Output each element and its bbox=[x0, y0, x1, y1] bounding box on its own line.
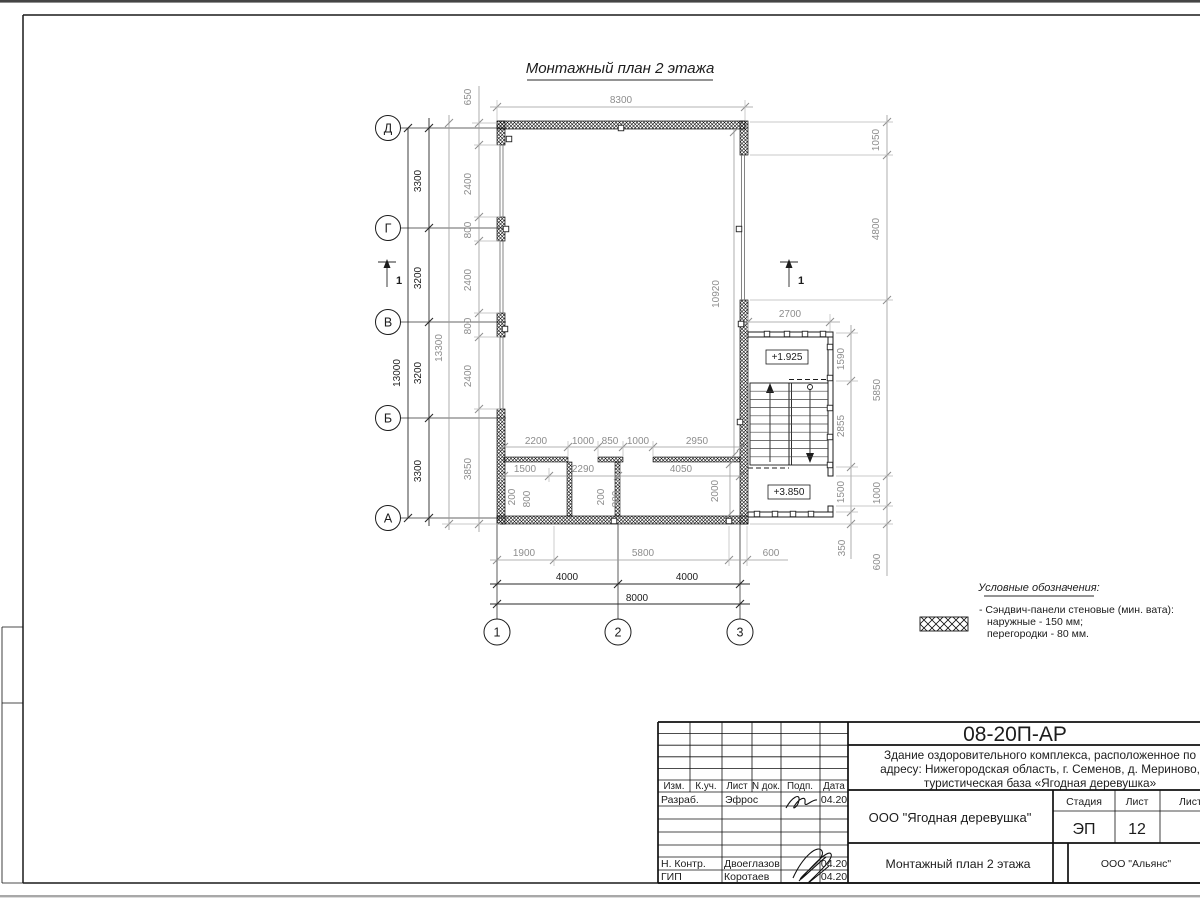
dimension-label: 13000 bbox=[392, 359, 403, 387]
project-description-line: туристическая база «Ягодная деревушка» bbox=[924, 776, 1157, 790]
dimension-label: 850 bbox=[602, 436, 619, 447]
dimension-label: 2400 bbox=[463, 172, 474, 195]
dimension-label: 800 bbox=[463, 317, 474, 334]
panel-joint-icon bbox=[618, 125, 624, 131]
panel-joint-icon bbox=[738, 321, 744, 327]
dimension-label: 350 bbox=[837, 539, 848, 556]
panel-joint-icon bbox=[827, 344, 833, 350]
legend-title: Условные обозначения: bbox=[977, 582, 1099, 594]
drawing-name: Монтажный план 2 этажа bbox=[885, 857, 1030, 871]
sandwich-panel-hatch-icon bbox=[920, 617, 968, 631]
dimension-label: 1000 bbox=[872, 481, 883, 504]
role-label: Разраб. bbox=[661, 794, 699, 806]
sheet-bottom-edge bbox=[0, 895, 1200, 897]
dimension-label: 600 bbox=[872, 553, 883, 570]
panel-joint-icon bbox=[827, 462, 833, 468]
dimension-label: 2000 bbox=[710, 479, 721, 502]
window-glazing bbox=[500, 145, 745, 409]
section-mark-right: 1 bbox=[780, 259, 804, 287]
legend-item: перегородки - 80 мм. bbox=[987, 628, 1089, 640]
elevation-mark-upper: +1.925 bbox=[766, 350, 808, 364]
panel-joint-icon bbox=[820, 331, 826, 337]
panel-joint-icon bbox=[827, 434, 833, 440]
axis-label: 1 bbox=[494, 626, 501, 640]
axis-label: 2 bbox=[615, 626, 622, 640]
panel-joint-icon bbox=[726, 518, 732, 524]
drawing-canvas: Монтажный план 2 этажа bbox=[0, 0, 1200, 900]
dimension-label: 1900 bbox=[513, 548, 536, 559]
dimension-labels-layer: 1300033003200320033001330065024008002400… bbox=[376, 88, 884, 645]
panel-joint-icon bbox=[503, 226, 509, 232]
dimension-label: 650 bbox=[463, 88, 474, 105]
sheet-number: 12 bbox=[1128, 821, 1146, 838]
document-code: 08-20П-АР bbox=[963, 723, 1067, 746]
stage-label: Стадия bbox=[1066, 796, 1102, 808]
column-header: Дата bbox=[823, 781, 845, 792]
panel-joint-icon bbox=[764, 331, 770, 337]
dimension-label: 2200 bbox=[525, 436, 548, 447]
dimension-label: 1590 bbox=[836, 347, 847, 370]
dimension-label: 800 bbox=[463, 221, 474, 238]
dimension-label: 2290 bbox=[572, 464, 595, 475]
dimension-label: 1000 bbox=[627, 436, 650, 447]
dimension-label: 3200 bbox=[413, 266, 424, 289]
role-label: ГИП bbox=[661, 871, 682, 883]
legend-item: - Сэндвич-панели стеновые (мин. вата): bbox=[979, 604, 1174, 616]
dimension-lines-layer bbox=[404, 86, 893, 608]
panel-joint-icon bbox=[502, 326, 508, 332]
dimension-label: 1050 bbox=[871, 128, 882, 151]
role-label: Н. Контр. bbox=[661, 858, 706, 870]
axis-lines bbox=[400, 128, 740, 619]
dimension-label: 5850 bbox=[872, 378, 883, 401]
dimension-label: 2855 bbox=[836, 414, 847, 437]
plan-title-text: Монтажный план 2 этажа bbox=[526, 60, 715, 77]
dimension-label: 2400 bbox=[463, 268, 474, 291]
stair-start-marker bbox=[808, 385, 813, 390]
dimension-label: 8000 bbox=[626, 593, 649, 604]
elevation-mark-lower: +3.850 bbox=[768, 485, 810, 499]
dimension-label: 2700 bbox=[779, 309, 802, 320]
panel-joint-icon bbox=[754, 511, 760, 517]
frame-left-strip bbox=[2, 627, 23, 883]
column-header: Лист bbox=[726, 781, 748, 792]
dimension-label: 2950 bbox=[686, 436, 709, 447]
section-number: 1 bbox=[798, 275, 804, 287]
column-header: К.уч. bbox=[695, 781, 716, 792]
dimension-label: 5800 bbox=[632, 548, 655, 559]
section-arrow-icon bbox=[786, 259, 793, 268]
dimension-label: 3200 bbox=[413, 361, 424, 384]
dimension-label: 800 bbox=[611, 490, 622, 507]
panel-joint-icon bbox=[784, 331, 790, 337]
axis-label: Г bbox=[385, 222, 392, 236]
dimension-label: 200 bbox=[596, 488, 607, 505]
elevation-value: +3.850 bbox=[774, 487, 805, 498]
legend-item: наружные - 150 мм; bbox=[987, 616, 1083, 628]
panel-joint-icon bbox=[506, 136, 512, 142]
dimension-label: 8300 bbox=[610, 95, 633, 106]
stair-annex: +1.925 +3.850 bbox=[748, 332, 833, 517]
axis-label: 3 bbox=[737, 626, 744, 640]
dimension-label: 4000 bbox=[556, 572, 579, 583]
column-header: Изм. bbox=[664, 781, 685, 792]
date-value: 04.20 bbox=[821, 871, 847, 883]
panel-joint-icon bbox=[790, 511, 796, 517]
title-block: 08-20П-АР Здание оздоровительного компле… bbox=[658, 722, 1200, 883]
dimension-label: 10920 bbox=[711, 280, 722, 308]
axis-label: А bbox=[384, 512, 393, 526]
dimension-label: 4800 bbox=[871, 217, 882, 240]
section-arrow-icon bbox=[384, 259, 391, 268]
dimension-tick bbox=[404, 124, 744, 608]
dimension-label: 3300 bbox=[413, 169, 424, 192]
dimension-label: 200 bbox=[507, 488, 518, 505]
dimension-label: 3300 bbox=[413, 459, 424, 482]
dimension-label: 3850 bbox=[463, 457, 474, 480]
plan-title: Монтажный план 2 этажа bbox=[526, 60, 715, 80]
person-name: Эфрос bbox=[725, 794, 758, 806]
panel-joint-icon bbox=[772, 511, 778, 517]
panel-joint-icon bbox=[827, 375, 833, 381]
dimension-label: 800 bbox=[522, 490, 533, 507]
panel-joint-icon bbox=[802, 331, 808, 337]
date-value: 04.20 bbox=[821, 858, 847, 870]
dimension-label: 1500 bbox=[514, 464, 537, 475]
panel-joint-icon bbox=[736, 226, 742, 232]
panel-joint-icon bbox=[737, 419, 743, 425]
column-header: Подп. bbox=[787, 781, 813, 792]
person-name: Коротаев bbox=[724, 871, 770, 883]
panel-joint-icon bbox=[808, 511, 814, 517]
project-description-line: адресу: Нижегородская область, г. Семено… bbox=[880, 762, 1200, 776]
elevation-value: +1.925 bbox=[772, 352, 803, 363]
design-company: ООО "Альянс" bbox=[1101, 858, 1171, 870]
dimension-label: 2400 bbox=[463, 364, 474, 387]
dimension-line bbox=[408, 118, 750, 604]
dimension-label: 1500 bbox=[836, 480, 847, 503]
date-value: 04.20 bbox=[821, 794, 847, 806]
axis-label: Д bbox=[384, 122, 393, 136]
sheet-label: Лист bbox=[1126, 796, 1149, 808]
dimension-label: 13300 bbox=[434, 334, 445, 362]
section-mark-left: 1 bbox=[378, 259, 402, 287]
person-name: Двоеглазов bbox=[724, 858, 780, 870]
project-description-line: Здание оздоровительного комплекса, распо… bbox=[884, 748, 1196, 762]
axis-label: В bbox=[384, 316, 392, 330]
sheets-label: Листов bbox=[1179, 796, 1200, 808]
dimension-label: 1000 bbox=[572, 436, 595, 447]
legend: Условные обозначения: - Сэндвич-панели с… bbox=[920, 582, 1174, 640]
stair-down-arrowhead bbox=[806, 453, 814, 463]
sheet-top-edge bbox=[0, 0, 1200, 3]
dimension-label: 600 bbox=[763, 548, 780, 559]
client-organization: ООО "Ягодная деревушка" bbox=[869, 810, 1032, 825]
drawing-sheet: Монтажный план 2 этажа bbox=[0, 0, 1200, 900]
section-number: 1 bbox=[396, 275, 402, 287]
dimension-label: 4050 bbox=[670, 464, 693, 475]
panel-joint-icon bbox=[611, 518, 617, 524]
column-header: N док. bbox=[752, 781, 780, 792]
panel-joint-icon bbox=[827, 405, 833, 411]
dimension-label: 4000 bbox=[676, 572, 699, 583]
axis-label: Б bbox=[384, 412, 392, 426]
stage-value: ЭП bbox=[1073, 821, 1096, 838]
